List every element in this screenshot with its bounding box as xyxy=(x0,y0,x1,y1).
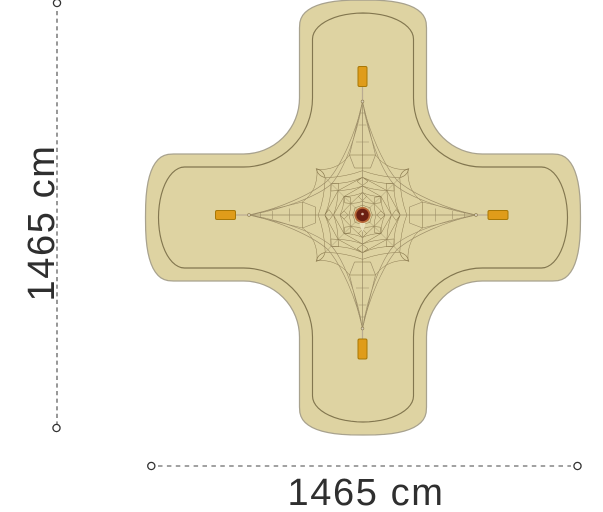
svg-text:1465 cm: 1465 cm xyxy=(288,472,445,512)
svg-text:1465 cm: 1465 cm xyxy=(21,145,63,302)
